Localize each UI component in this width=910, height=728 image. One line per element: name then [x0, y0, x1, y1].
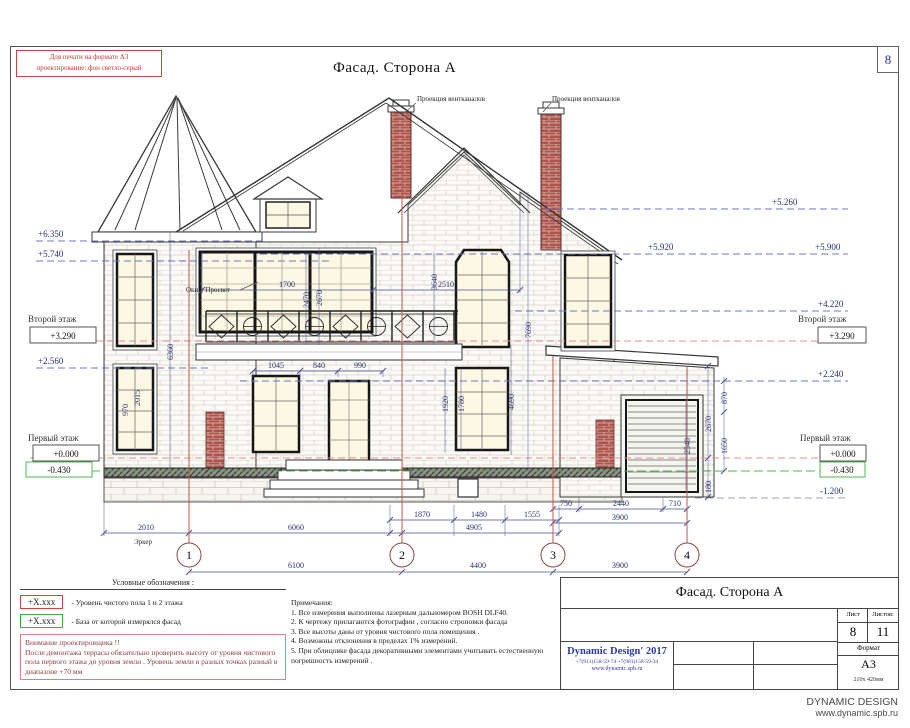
- dim-2470: 2470: [302, 292, 311, 308]
- dim-1555: 1555: [524, 510, 540, 519]
- vent-label-1: Проекция вентканалов: [417, 95, 486, 103]
- level-5740: +5.740: [38, 249, 64, 259]
- legend-title: Условные обозначения :: [20, 578, 286, 590]
- dim-1870: 1870: [414, 510, 430, 519]
- dim-870: 870: [720, 392, 729, 404]
- dim-3640: 3640: [430, 274, 439, 290]
- chimney-2: [538, 102, 564, 250]
- brick-pilaster-left: [206, 412, 224, 470]
- footer-brand: DYNAMIC DESIGN www.dynamic.spb.ru: [640, 696, 898, 718]
- title-block-divider: [753, 642, 754, 689]
- title-block: Фасад. Сторона А Лист Листов: 8 11 Форма…: [560, 577, 899, 690]
- grid-number-2: 2: [399, 548, 405, 562]
- title-block-divider: [673, 664, 837, 665]
- basement-vent: [458, 479, 478, 497]
- format-value: А3: [837, 655, 899, 673]
- floor2-value-right: +3.290: [829, 331, 855, 341]
- dim-3900-axis: 3900: [612, 561, 628, 570]
- dim-180: 180: [704, 481, 713, 493]
- dim-2010: 2010: [138, 523, 154, 532]
- dim-1480: 1480: [471, 510, 487, 519]
- level-4220: +4.220: [818, 299, 844, 309]
- designer-warning-box: Внимание проектировщика !! После демонта…: [20, 634, 286, 680]
- dim-6360: 6360: [166, 344, 175, 360]
- legend-text-base: - База от которой измерялся фасад: [71, 617, 181, 626]
- level-2560: +2.560: [38, 356, 64, 366]
- vent-label-2: Проекция вентканалов: [552, 95, 621, 103]
- chimney-1: [388, 100, 414, 198]
- legend-key-red: +X.xxx: [20, 595, 63, 609]
- floor2-value-left: +3.290: [50, 331, 76, 341]
- title-block-divider: [673, 642, 674, 689]
- dormer-pediment: [254, 177, 322, 199]
- level-5260: +5.260: [772, 197, 798, 207]
- sheet-value: 8: [837, 622, 868, 643]
- dim-7690: 7690: [524, 322, 533, 338]
- floor1-label-right: Первый этаж: [800, 433, 851, 443]
- tower-window-2f: [113, 250, 157, 350]
- level-5900: +5.900: [815, 242, 841, 252]
- dim-2440: 2440: [613, 499, 629, 508]
- base-value-right: -0.430: [830, 465, 854, 475]
- legend-text-floor-level: - Уровень чистого пола 1 и 2 этажа: [71, 598, 182, 607]
- legend-item-base: +X.xxx - База от которой измерялся фасад: [20, 614, 286, 628]
- company-site: www.dynamic.spb.ru: [563, 666, 671, 672]
- floor1-value-right: +0.000: [830, 449, 856, 459]
- entry-door: [329, 381, 369, 461]
- dim-750: 750: [560, 499, 572, 508]
- sheet-label: Лист: [837, 608, 868, 623]
- format-label: Формат: [837, 642, 899, 656]
- floor2-label-left: Второй этаж: [28, 314, 77, 324]
- dim-1700: 1700: [279, 280, 295, 289]
- dim-2510: 2510: [438, 280, 454, 289]
- dim-970: 970: [121, 404, 130, 416]
- note-2: 2. К чертежу прилагаются фотографии , со…: [291, 617, 559, 627]
- company-stamp: Dynamic Design' 2017 +7(911)158-59-74 +7…: [563, 643, 671, 687]
- dim-2015: 2015: [133, 390, 142, 406]
- dim-1920: 1920: [441, 396, 450, 412]
- dim-6060: 6060: [288, 523, 304, 532]
- grid-number-4: 4: [684, 548, 690, 562]
- company-phones: +7(911)158-59-74 +7(981)158-59-34: [563, 659, 671, 665]
- window-opening-label: Окно: Просвет: [186, 286, 230, 294]
- gable-window-2f: [456, 250, 509, 347]
- right-window-2f: [561, 251, 615, 351]
- company-name: Dynamic Design' 2017: [563, 646, 671, 657]
- bay-label: Эркер: [134, 538, 152, 546]
- drawing-sheet: Для печати на формате А3 проектирование:…: [0, 0, 910, 728]
- dim-1650: 1650: [720, 438, 729, 454]
- note-1: 1. Все измерения выполнены лазерным даль…: [291, 608, 559, 618]
- note-3: 3. Все высоты даны от уровня чистового п…: [291, 627, 559, 637]
- floor1-label-left: Первый этаж: [28, 433, 79, 443]
- note-5: 5. При облицовке фасада декоративными эл…: [291, 646, 559, 665]
- dim-840: 840: [313, 361, 325, 370]
- notes-block: Примечания: 1. Все измерения выполнены л…: [291, 598, 559, 665]
- floor2-label-right: Второй этаж: [798, 314, 847, 324]
- legend-key-green: +X.xxx: [20, 614, 63, 628]
- title-block-title: Фасад. Сторона А: [561, 578, 898, 609]
- dim-4690: 4690: [507, 394, 516, 410]
- tower-window-1f: [113, 364, 157, 454]
- level-5920: +5.920: [648, 242, 674, 252]
- legend-item-floor-level: +X.xxx - Уровень чистого пола 1 и 2 этаж…: [20, 595, 286, 609]
- dim-4400: 4400: [470, 561, 486, 570]
- grid-number-3: 3: [550, 548, 556, 562]
- dim-3900: 3900: [612, 513, 628, 522]
- warning-text: После демонтажа террасы обязательно пров…: [25, 648, 281, 677]
- note-4: 4. Возможны отклонения в пределах 1% изм…: [291, 636, 559, 646]
- format-size: 210х 420мм: [837, 673, 899, 689]
- footer-brand-site: www.dynamic.spb.ru: [640, 708, 898, 718]
- sheets-label: Листов:: [867, 608, 898, 623]
- center-window-1f: [253, 376, 299, 452]
- dim-710: 710: [669, 499, 681, 508]
- level-6350: +6.350: [38, 229, 64, 239]
- dim-6100: 6100: [288, 561, 304, 570]
- dormer: [254, 177, 322, 232]
- dim-2670: 2670: [315, 290, 324, 306]
- legend: Условные обозначения : +X.xxx - Уровень …: [20, 578, 286, 680]
- level-1200: -1.200: [820, 486, 844, 496]
- base-value-left: -0.430: [47, 465, 71, 475]
- dim-2670b: 2670: [704, 416, 713, 432]
- dim-1045: 1045: [268, 361, 284, 370]
- warning-title: Внимание проектировщика !!: [25, 638, 281, 648]
- footer-brand-name: DYNAMIC DESIGN: [640, 696, 898, 708]
- grid-number-1: 1: [186, 548, 192, 562]
- sheets-value: 11: [867, 622, 898, 643]
- level-2240: +2.240: [818, 369, 844, 379]
- brick-pilaster-right: [596, 420, 614, 470]
- porch-steps: [264, 460, 424, 497]
- dim-4905: 4905: [466, 523, 482, 532]
- floor1-value-left: +0.000: [53, 449, 79, 459]
- title-block-divider: [561, 641, 837, 642]
- dim-990: 990: [354, 361, 366, 370]
- dim-1780: 1780: [457, 396, 466, 412]
- notes-title: Примечания:: [291, 598, 559, 608]
